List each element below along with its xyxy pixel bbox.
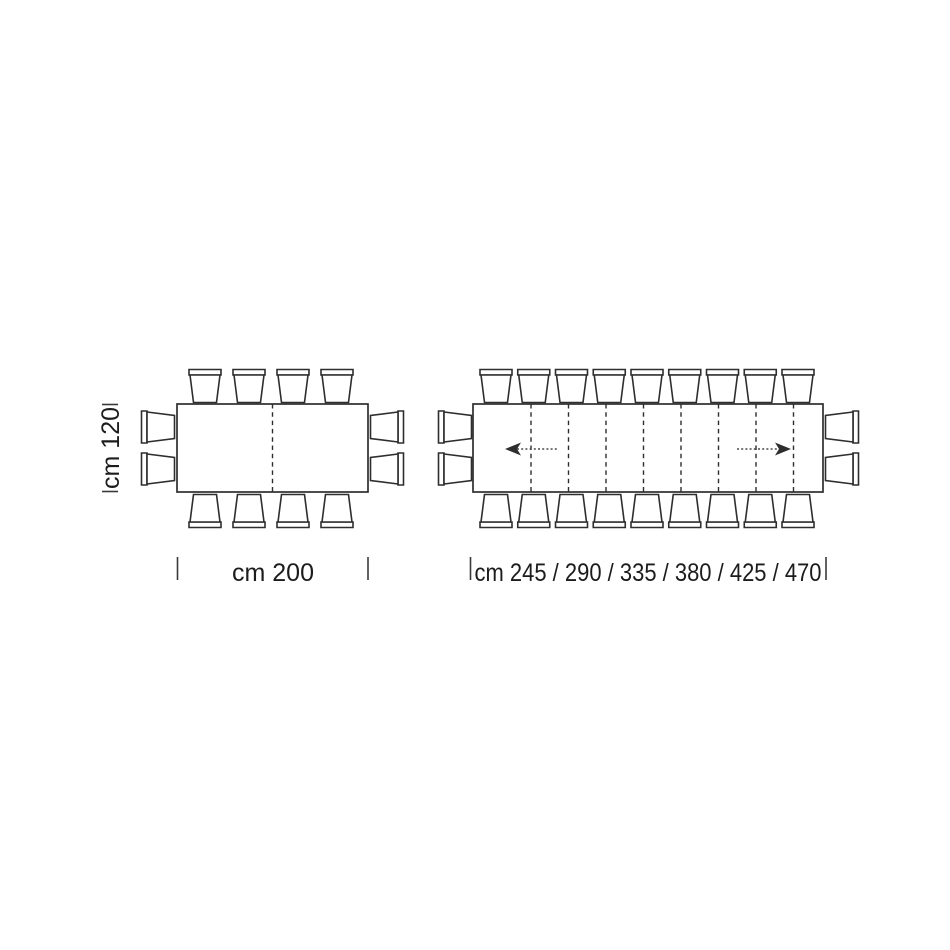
chair-icon: [556, 495, 588, 528]
chair-icon: [556, 370, 588, 403]
chair-icon: [669, 495, 701, 528]
chair-icon: [631, 370, 663, 403]
table-dimensions-diagram: cm 120 cm 200 cm 245 / 290 / 335 / 380 /…: [0, 0, 950, 950]
fixed-table-figure: [142, 370, 404, 528]
chair-icon: [744, 370, 776, 403]
chair-icon: [631, 495, 663, 528]
chair-icon: [782, 495, 814, 528]
chair-icon: [518, 370, 550, 403]
chair-icon: [277, 370, 309, 403]
chair-icon: [480, 495, 512, 528]
chair-icon: [593, 370, 625, 403]
extending-table-top: [473, 404, 823, 492]
chair-icon: [321, 370, 353, 403]
extending-table-lengths-label: cm 245 / 290 / 335 / 380 / 425 / 470: [475, 559, 822, 587]
extending-table-figure: [439, 370, 859, 528]
chair-icon: [321, 495, 353, 528]
chair-icon: [189, 370, 221, 403]
fixed-table-length-label: cm 200: [232, 559, 314, 587]
chair-icon: [782, 370, 814, 403]
chair-icon: [744, 495, 776, 528]
chair-icon: [142, 453, 175, 485]
diagram-canvas: cm 120 cm 200 cm 245 / 290 / 335 / 380 /…: [0, 0, 950, 950]
chair-icon: [189, 495, 221, 528]
chair-icon: [707, 495, 739, 528]
chair-icon: [480, 370, 512, 403]
chair-icon: [593, 495, 625, 528]
chair-icon: [233, 495, 265, 528]
chair-icon: [233, 370, 265, 403]
chair-icon: [826, 411, 859, 443]
fixed-table-depth-label: cm 120: [97, 407, 125, 489]
chair-icon: [371, 411, 404, 443]
chair-icon: [277, 495, 309, 528]
chair-icon: [826, 453, 859, 485]
chair-icon: [518, 495, 550, 528]
chair-icon: [142, 411, 175, 443]
chair-icon: [707, 370, 739, 403]
chair-icon: [439, 453, 472, 485]
chair-icon: [371, 453, 404, 485]
chair-icon: [669, 370, 701, 403]
chair-icon: [439, 411, 472, 443]
